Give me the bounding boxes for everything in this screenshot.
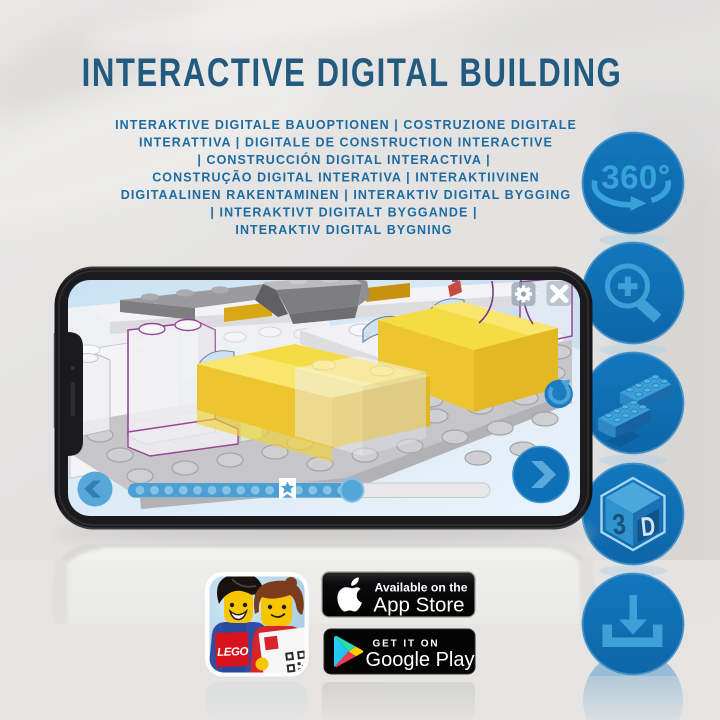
svg-text:Available on the: Available on the [374,581,467,595]
svg-text:Google Play: Google Play [366,649,475,671]
svg-text:INTERAKTIVE DIGITALE BAUOPTION: INTERAKTIVE DIGITALE BAUOPTIONEN | COSTR… [115,118,577,132]
svg-text:DIGITAALINEN RAKENTAMINEN | IN: DIGITAALINEN RAKENTAMINEN | INTERAKTIV D… [121,188,571,202]
svg-text:| INTERAKTIVT DIGITALT BYGGAND: | INTERAKTIVT DIGITALT BYGGANDE | [210,206,477,220]
svg-text:| CONSTRUCCIÓN DIGITAL INTERAC: | CONSTRUCCIÓN DIGITAL INTERACTIVA | [197,152,490,167]
svg-text:App Store: App Store [373,594,464,617]
svg-text:360: 360 [601,159,658,196]
svg-text:INTERACTIVE DIGITAL BUILDING: INTERACTIVE DIGITAL BUILDING [82,50,623,94]
svg-text:GET IT ON: GET IT ON [372,639,439,650]
svg-text:INTERAKTIV DIGITAL BYGNING: INTERAKTIV DIGITAL BYGNING [235,223,452,237]
svg-text:INTERATTIVA | DIGITALE DE CONS: INTERATTIVA | DIGITALE DE CONSTRUCTION I… [139,136,553,150]
svg-text:3: 3 [611,507,627,541]
svg-text:LEGO: LEGO [217,646,249,659]
svg-text:CONSTRUÇÃO DIGITAL INTERATIVA: CONSTRUÇÃO DIGITAL INTERATIVA | INTERAKT… [152,170,540,185]
